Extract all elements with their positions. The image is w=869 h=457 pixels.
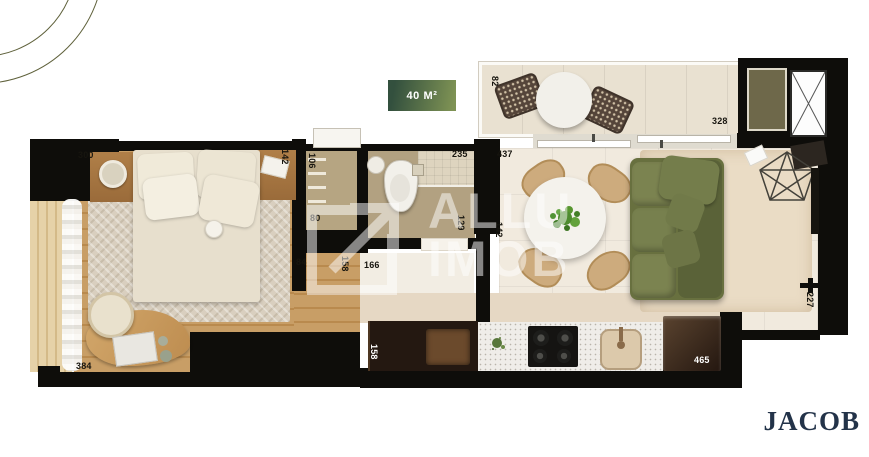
bathroom-sink: [367, 156, 385, 174]
sliding-door-panel: [637, 135, 731, 143]
watermark-line1: ALLU: [428, 188, 573, 235]
balcony-sliding-door: [533, 134, 737, 148]
dim-balcony-side: 82: [490, 76, 499, 86]
dim-kitchen-bottom: 465: [694, 356, 710, 365]
kitchen-cabinet-left: [368, 321, 478, 371]
wall-living-right: [818, 139, 848, 335]
wall-kitchen-bottom-band: [360, 368, 742, 388]
burner: [533, 349, 547, 363]
ac-condenser: [747, 68, 787, 131]
dim-bath-top: 235: [452, 150, 468, 159]
door-mark: [808, 278, 813, 293]
wall-bedroom-bottom-band: [40, 372, 362, 387]
burner: [557, 330, 573, 346]
faucet: [617, 341, 625, 349]
dim-bedroom-top: 300: [78, 151, 94, 160]
counter-plant: [492, 338, 502, 348]
dim-balcony-bottom: 328: [712, 117, 728, 126]
dim-living-right: 227: [805, 292, 814, 308]
cabinet-inset: [426, 329, 470, 365]
dim-bedroom-bottom: 384: [76, 362, 92, 371]
dim-kitchen-side: 158: [369, 344, 378, 360]
laptop: [112, 331, 158, 367]
wireframe-pendant-icon: [758, 150, 816, 202]
closet-shelf: [308, 172, 326, 175]
dim-living-top: 437: [497, 150, 513, 159]
shower-fixture: [412, 164, 424, 176]
refrigerator: [663, 316, 721, 371]
desk-item: [158, 336, 168, 346]
balcony-table: [536, 72, 592, 128]
burner: [533, 330, 549, 346]
desk-item: [160, 350, 172, 362]
desk-chair: [88, 292, 134, 338]
shaft-symbol: [790, 70, 827, 137]
burner: [557, 349, 571, 363]
shaft-box: [313, 128, 361, 148]
sliding-door-panel: [537, 140, 631, 148]
floorplan-canvas: 40 M²: [0, 0, 869, 457]
cooktop: [528, 326, 578, 367]
dim-bedroom-right: 142: [280, 149, 289, 165]
tv-console: [811, 168, 819, 234]
table-lamp: [99, 160, 127, 188]
curtain: [62, 199, 82, 371]
area-badge: 40 M²: [388, 80, 456, 111]
door-handle-mark: [660, 140, 663, 148]
area-badge-label: 40 M²: [406, 90, 437, 102]
door-handle-mark: [592, 134, 595, 142]
watermark-arrow-square-icon: [296, 184, 416, 298]
watermark-line2: IMOB: [428, 236, 571, 283]
faucet-stem: [619, 327, 623, 341]
bed-pillow: [142, 173, 201, 221]
wall-living-bottom-right: [742, 330, 820, 340]
kitchen-sink: [600, 329, 642, 370]
bed-accent-ball: [205, 220, 223, 238]
dim-closet-side: 106: [307, 153, 316, 169]
crossed-box-icon: [792, 72, 825, 135]
brand-logo: JACOB: [730, 406, 860, 437]
